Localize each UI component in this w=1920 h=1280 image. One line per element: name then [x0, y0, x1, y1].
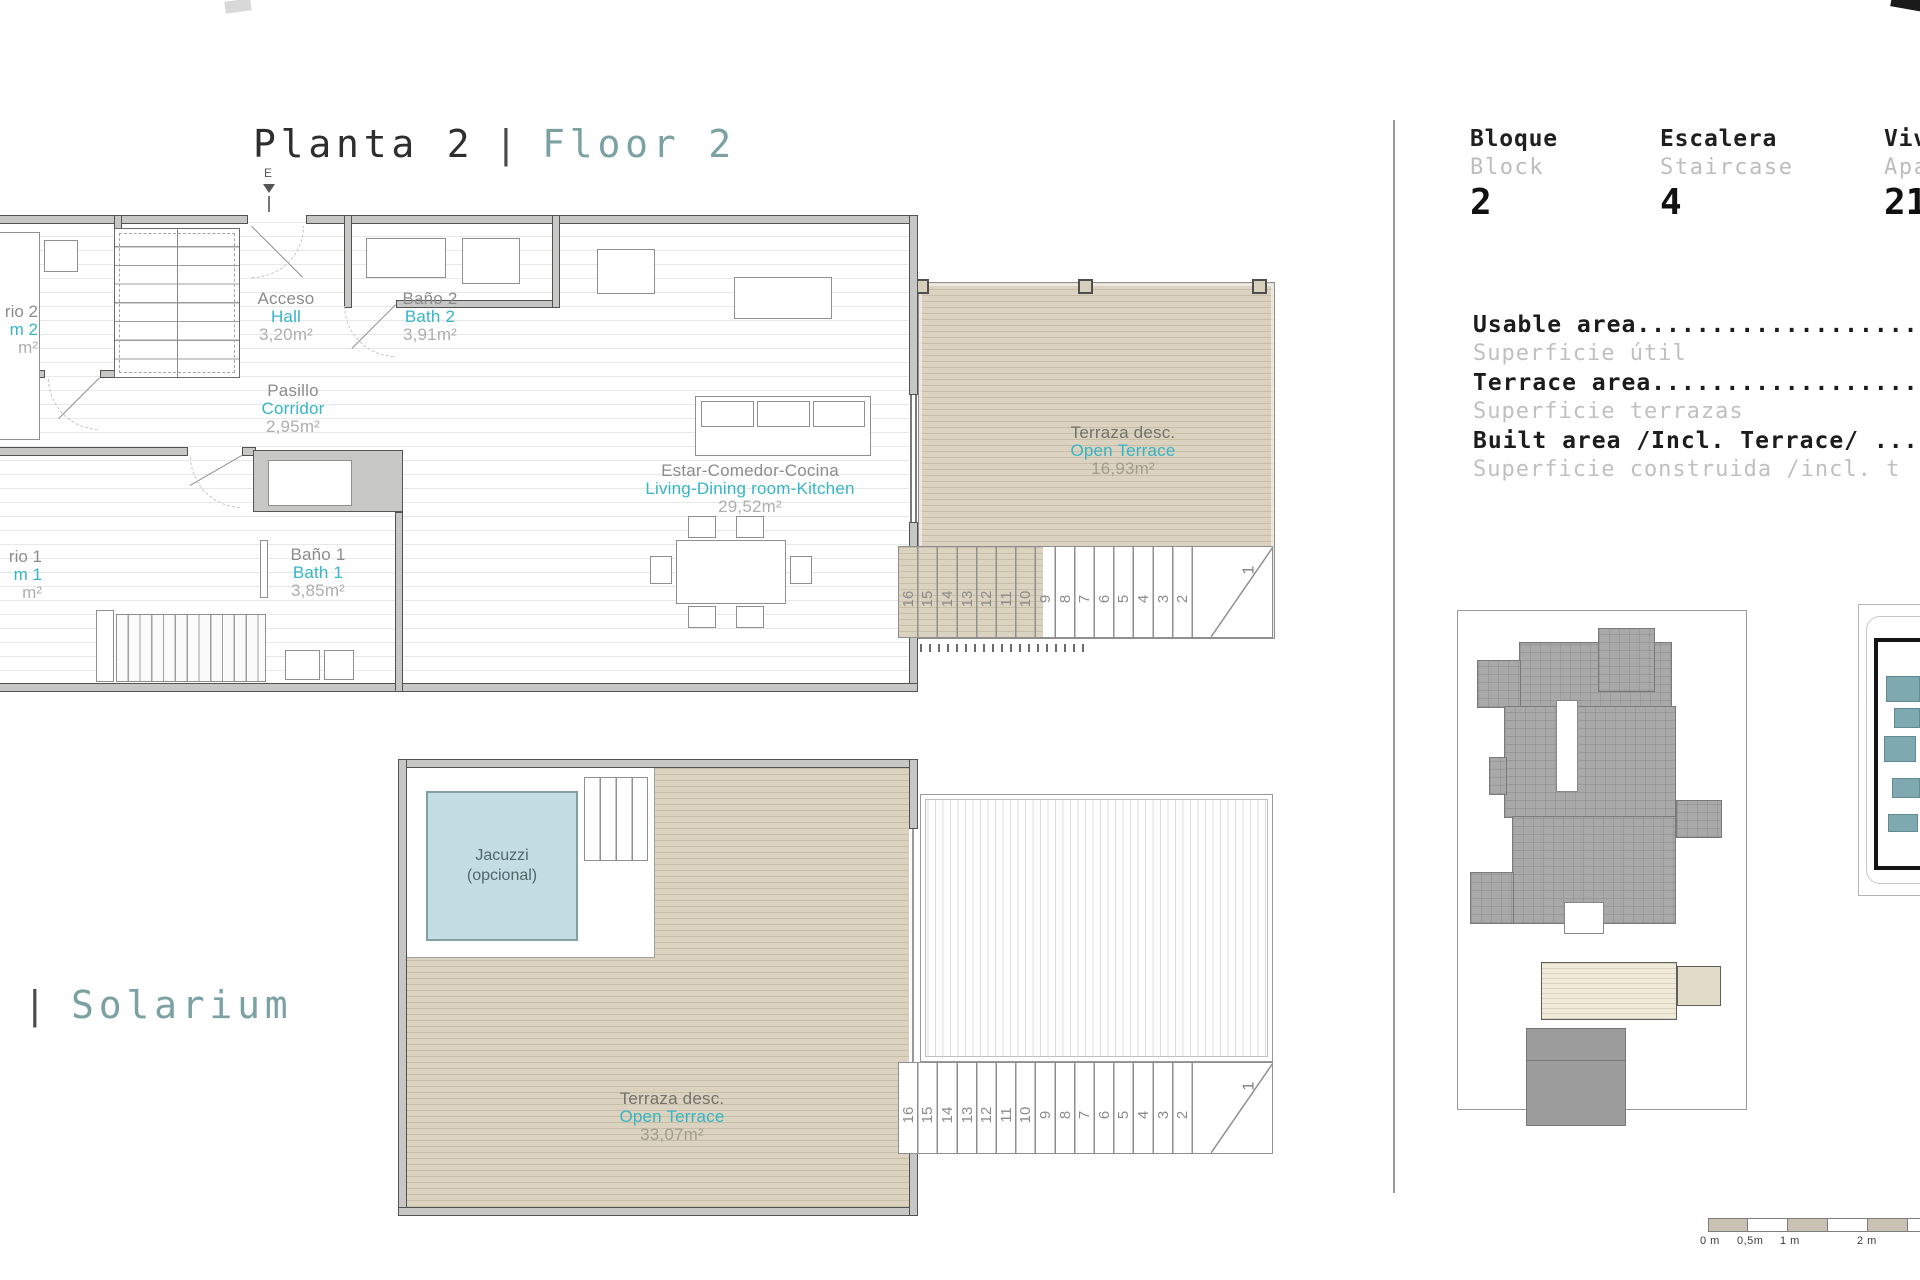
staircase-label-en: Staircase: [1660, 155, 1794, 180]
site-map-building: [1894, 708, 1920, 728]
stair-number: 4: [1136, 1098, 1152, 1132]
terrace-steps: [584, 777, 648, 861]
terrace-area-line: Terrace area............................…: [1473, 370, 1920, 396]
stair-number: 12: [979, 582, 995, 616]
scale-segment: [1708, 1218, 1748, 1232]
stair-number: 16: [901, 1098, 917, 1132]
terrace-post: [1078, 279, 1093, 294]
bath2-sink: [366, 238, 446, 278]
sofa-cushion: [757, 401, 810, 427]
bed-bedroom1: [116, 614, 266, 682]
key-plan-block: [1470, 872, 1514, 924]
wall: [0, 447, 188, 456]
wall: [552, 215, 560, 308]
stair-number: 6: [1097, 582, 1113, 616]
stair-number: 9: [1038, 582, 1054, 616]
key-plan-block: [1489, 757, 1507, 795]
key-plan-block: [1598, 628, 1655, 692]
stair-number: 7: [1077, 1098, 1093, 1132]
chair: [790, 556, 812, 584]
key-plan-solarium-block: [1526, 1028, 1626, 1126]
stair-number: 6: [1097, 1098, 1113, 1132]
dresser: [285, 650, 320, 680]
built-area-line-es: Superficie construida /incl. t: [1473, 457, 1900, 482]
wall: [306, 215, 918, 224]
jacuzzi-label-2: (opcional): [467, 867, 537, 884]
wall: [398, 759, 918, 768]
apartment-label-es: Viv: [1884, 126, 1920, 152]
wall: [398, 1207, 918, 1216]
print-artifact: [224, 0, 251, 14]
plan-sheet: Planta 2|Floor 2 E: [0, 0, 1920, 1280]
key-plan-block: [1504, 706, 1676, 818]
stair-number: 15: [920, 1098, 936, 1132]
chair: [650, 556, 672, 584]
stair-number: 8: [1058, 582, 1074, 616]
entrance-tick: [268, 196, 270, 212]
stair-number: 5: [1116, 1098, 1132, 1132]
usable-area-line: Usable area.............................…: [1473, 312, 1920, 338]
block-value: 2: [1470, 182, 1492, 223]
stair-number: 15: [920, 582, 936, 616]
terrace-post: [1252, 279, 1267, 294]
chair: [736, 606, 764, 628]
stair-number: 13: [960, 582, 976, 616]
staircase-label-es: Escalera: [1660, 126, 1777, 152]
stair-balusters: [920, 644, 1090, 652]
page-title: Planta 2|Floor 2: [253, 122, 736, 166]
stair-treads: 1615141312111098765432: [899, 1063, 1211, 1153]
stair-treads: 1615141312111098765432: [899, 547, 1211, 637]
title-divider: |: [474, 122, 542, 166]
room-label-corridor: PasilloCorridor2,95m²: [203, 382, 383, 436]
title-english: Floor 2: [542, 122, 736, 166]
room-label-terrace2: Terraza desc.Open Terrace16,93m²: [1033, 424, 1213, 478]
stair-number: 2: [1175, 1098, 1191, 1132]
key-plan-subject-unit: [1541, 962, 1677, 1020]
site-map-building: [1886, 676, 1920, 702]
key-plan-core: [1564, 902, 1604, 934]
chair: [736, 516, 764, 538]
usable-area-line-es: Superficie útil: [1473, 341, 1687, 366]
stair-number: 4: [1136, 582, 1152, 616]
room-label-bath2: Baño 2Bath 23,91m²: [340, 290, 520, 344]
room-label-bedroom2-cut: rio 2m 2m²: [0, 303, 38, 357]
stair-number: 7: [1077, 582, 1093, 616]
staircase-solarium: 1615141312111098765432 1: [898, 1062, 1273, 1154]
wall: [909, 215, 918, 395]
stairwell-pergola: [920, 794, 1273, 1062]
scale-segment: [1867, 1218, 1908, 1232]
site-map-building: [1888, 814, 1918, 832]
stair-first-step: 1: [1211, 547, 1273, 637]
bath2-shower: [462, 238, 520, 284]
stair-number: 16: [901, 582, 917, 616]
staircase-floor2: 1615141312111098765432 1: [898, 546, 1273, 638]
entrance-letter: E: [264, 166, 272, 180]
dining-table: [676, 540, 786, 604]
wall: [0, 215, 248, 224]
stair-number: 1: [1240, 566, 1258, 575]
solarium-title-english: Solarium: [71, 983, 292, 1027]
bath1-niche: [268, 460, 352, 506]
key-plan-block: [1676, 800, 1722, 838]
staircase-value: 4: [1660, 182, 1682, 223]
stair-number: 14: [940, 582, 956, 616]
scale-label: 0,5m: [1737, 1235, 1763, 1247]
wall: [909, 759, 918, 829]
jacuzzi-label: Jacuzzi: [475, 847, 528, 864]
apartment-value: 21: [1884, 182, 1920, 223]
nightstand: [44, 240, 78, 272]
stair-number: 2: [1175, 582, 1191, 616]
room-label-bedroom1-cut: rio 1m 1m²: [0, 548, 42, 602]
scale-segment: [1827, 1218, 1868, 1232]
chair: [688, 516, 716, 538]
jacuzzi: Jacuzzi(opcional): [426, 791, 578, 941]
key-plan-block: [1477, 660, 1521, 708]
divider-line: [1393, 120, 1395, 1193]
apartment-label-en: Apa: [1884, 155, 1920, 180]
stair-number: 14: [940, 1098, 956, 1132]
wall: [398, 759, 407, 1216]
scale-segment: [1747, 1218, 1788, 1232]
room-label-bath1: Baño 1Bath 13,85m²: [228, 546, 408, 600]
wall: [0, 683, 918, 692]
stair-number: 3: [1156, 1098, 1172, 1132]
key-plan-core: [1556, 700, 1578, 792]
scale-segment: [1787, 1218, 1828, 1232]
sofa-cushion: [701, 401, 754, 427]
wall: [395, 512, 403, 692]
key-plan-divider: [1526, 1060, 1626, 1061]
site-map-building: [1884, 736, 1916, 762]
room-label-living: Estar-Comedor-CocinaLiving-Dining room-K…: [610, 462, 890, 516]
stair-number: 5: [1116, 582, 1132, 616]
stair-number: 10: [1018, 582, 1034, 616]
block-label-en: Block: [1470, 155, 1544, 180]
stair-number: 10: [1018, 1098, 1034, 1132]
scale-label: 1 m: [1780, 1235, 1800, 1247]
key-plan-subject-terrace: [1677, 966, 1721, 1006]
dresser: [324, 650, 354, 680]
stair-number: 11: [999, 1098, 1015, 1132]
stair-number: 11: [999, 582, 1015, 616]
stair-number: 9: [1038, 1098, 1054, 1132]
title-spanish: Planta 2: [253, 122, 474, 166]
chair: [688, 606, 716, 628]
stair-number: 1: [1240, 1082, 1258, 1091]
stair-number: 13: [960, 1098, 976, 1132]
solarium-title: um|Solarium: [0, 983, 292, 1027]
stair-number: 8: [1058, 1098, 1074, 1132]
scale-label: 0 m: [1700, 1235, 1720, 1247]
sofa-cushion: [813, 401, 865, 427]
scale-label: 2 m: [1857, 1235, 1877, 1247]
entrance-arrow-icon: [263, 184, 275, 193]
terrace-area-line-es: Superficie terrazas: [1473, 399, 1744, 424]
site-map-building: [1892, 778, 1920, 798]
corner-mark: [1890, 0, 1920, 12]
built-area-line: Built area /Incl. Terrace/ .............…: [1473, 428, 1920, 454]
sliding-door-line: [910, 395, 912, 522]
block-label-es: Bloque: [1470, 126, 1558, 152]
sliding-door-line: [915, 395, 917, 522]
bed-headboard: [96, 610, 114, 682]
stair-number: 12: [979, 1098, 995, 1132]
stair-first-step: 1: [1211, 1063, 1273, 1153]
room-label-solarium-terrace: Terraza desc.Open Terrace33,07m²: [582, 1090, 762, 1144]
kitchen-island: [597, 249, 655, 294]
sideboard: [734, 277, 832, 319]
stair-number: 3: [1156, 582, 1172, 616]
scale-segment: [1907, 1218, 1920, 1232]
solarium-title-divider: |: [3, 983, 71, 1027]
